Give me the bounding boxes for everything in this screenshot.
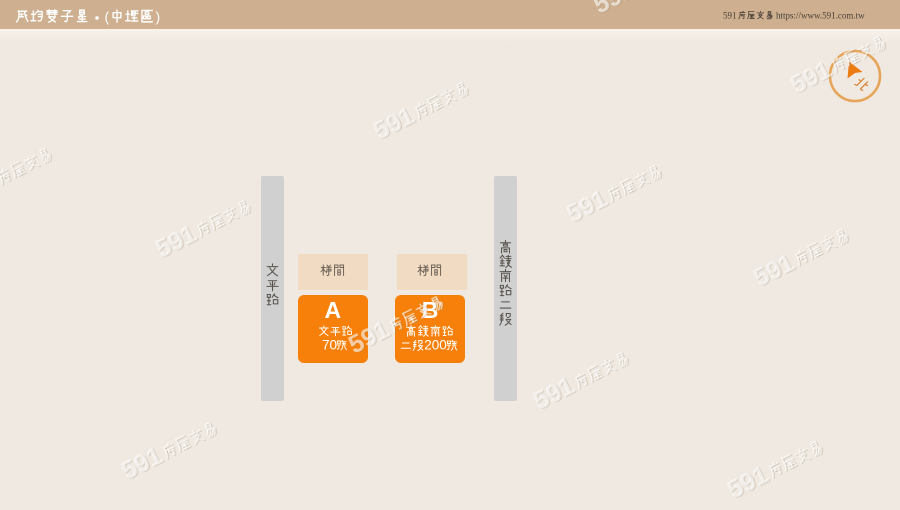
svg-text:591: 591 [749,248,799,292]
svg-text:70: 70 [322,338,337,353]
svg-text:200: 200 [424,338,447,353]
svg-text:(: ( [105,9,110,25]
svg-text:https://www.591.com.tw: https://www.591.com.tw [776,11,865,21]
svg-text:591: 591 [723,11,737,21]
svg-text:591: 591 [151,219,201,263]
svg-text:591: 591 [369,101,419,145]
svg-text:591: 591 [529,371,579,415]
svg-text:591: 591 [562,184,612,228]
svg-text:591: 591 [117,441,167,485]
svg-text:): ) [156,9,161,25]
svg-text:591: 591 [723,460,773,504]
